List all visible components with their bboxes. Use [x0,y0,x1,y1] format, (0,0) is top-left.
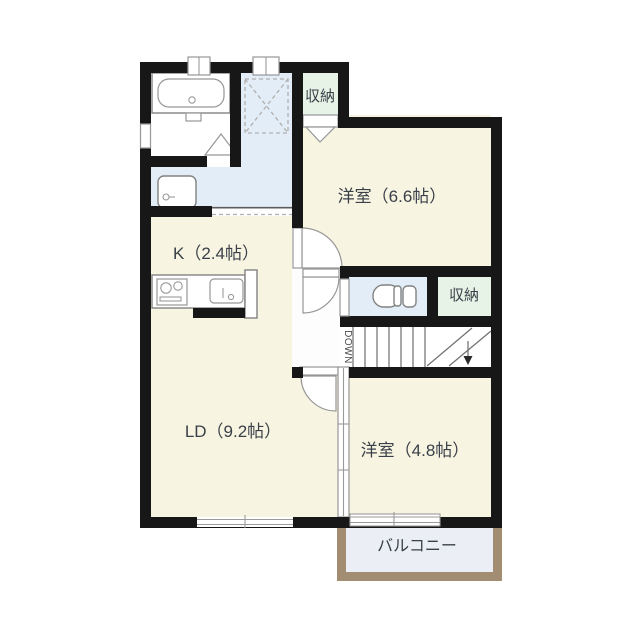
wall-washroom-bottom [140,206,212,217]
window-hall-top [253,57,279,75]
washbasin-icon [158,176,196,208]
living-dining-label: LD（9.2帖） [185,422,281,441]
wall-stairs-bottom-right [349,367,502,378]
wall-top-left [140,62,349,73]
western-room-2-label: 洋室（4.8帖） [361,441,470,460]
closet-top-label: 収納 [305,88,335,105]
wall-closet-stub [338,62,349,123]
wall-stairs-top [340,316,502,327]
kitchen-sink-icon [210,279,243,303]
wall-bath-right [230,62,241,167]
bathtub-icon [152,73,230,121]
wall-top-right [338,117,502,128]
balcony-label: バルコニー [377,538,457,555]
window-bath-top [188,57,210,75]
toilet-door-leaf [340,279,349,316]
hall-kitchen-counter [210,207,294,216]
wall-stairs-bottom-left [292,367,303,378]
floorplan-svg: 収納 洋室（6.6帖） K（2.4帖） 収納 LD（9.2帖） 洋室（4.8帖）… [0,0,640,640]
counter-half-wall [193,308,245,318]
sliding-partition [338,367,349,517]
wall-center-vert [292,62,303,228]
window-balcony [350,512,440,526]
closet-side-label: 収納 [449,287,479,304]
kitchen-label: K（2.4帖） [173,244,259,263]
floorplan-canvas: 収納 洋室（6.6帖） K（2.4帖） 収納 LD（9.2帖） 洋室（4.8帖）… [0,0,640,640]
wall-toilet-top [340,266,502,277]
wall-bath-bottom [140,156,207,167]
western-room-1-label: 洋室（6.6帖） [338,187,447,206]
stairs-down-label: DOWN [342,330,353,364]
window-bath-left [141,124,151,148]
wall-bottom [140,517,502,528]
toilet-icon [373,285,416,307]
